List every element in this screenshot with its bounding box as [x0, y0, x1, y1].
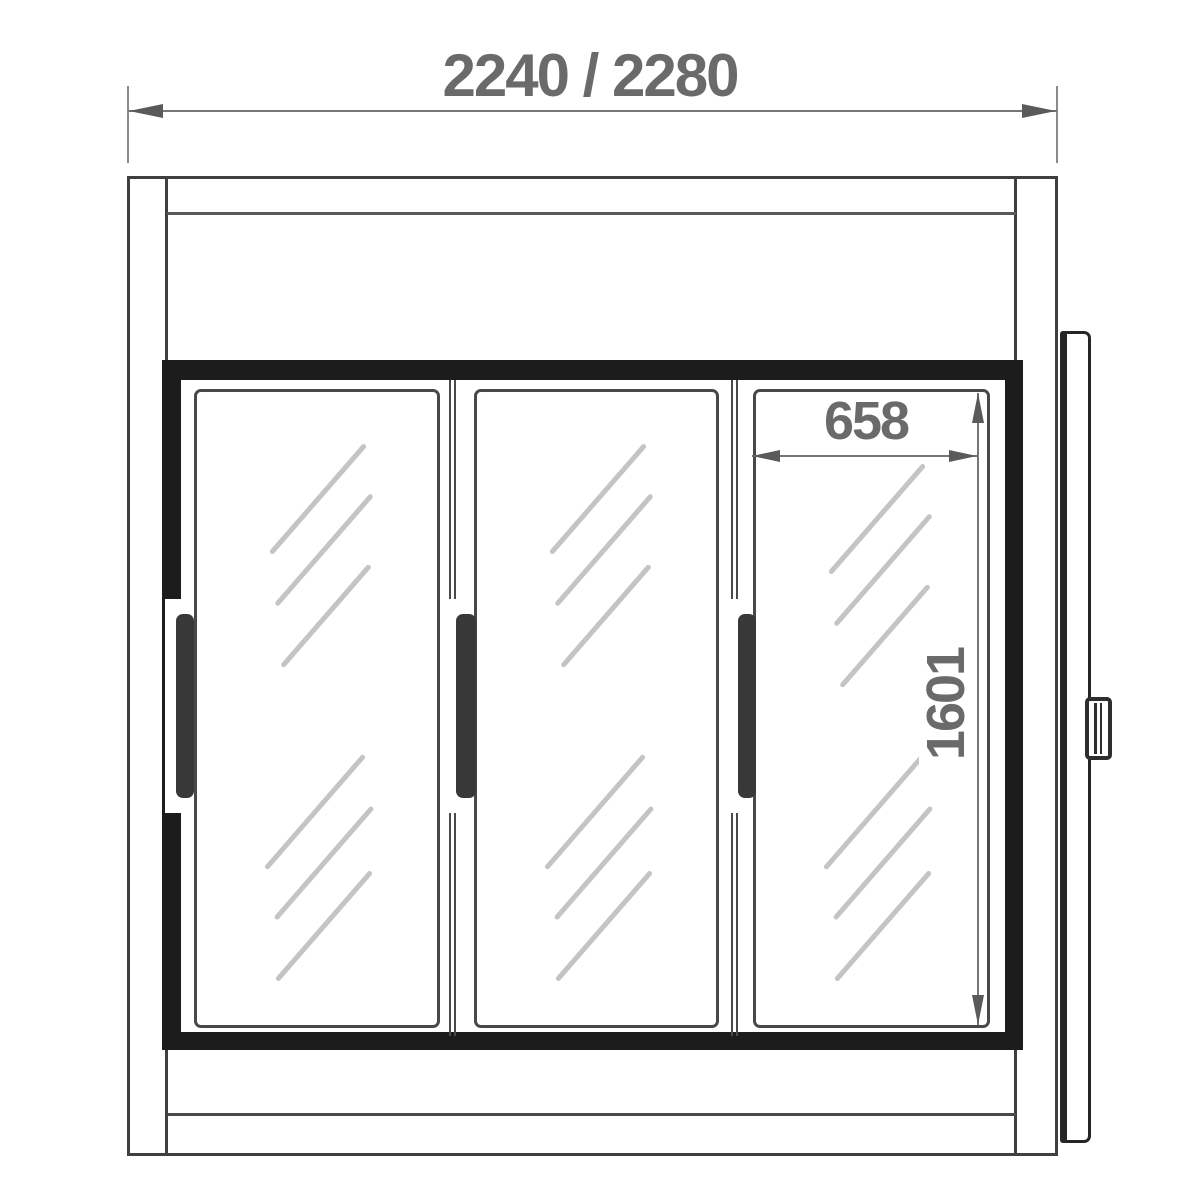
- door-height-dimension-label: 1601: [919, 644, 973, 764]
- side-door-latch: [1085, 697, 1112, 760]
- glass-reflection-line: [833, 513, 933, 626]
- extension-line-left: [127, 86, 129, 163]
- arrowhead-right-icon: [1022, 104, 1056, 118]
- door-handle-middle: [456, 614, 476, 798]
- glass-reflection-line: [823, 754, 925, 870]
- glass-reflection-line: [264, 754, 366, 870]
- glass-reflection-line: [275, 870, 373, 982]
- glass-reflection-line: [833, 806, 934, 921]
- glass-door-middle: [474, 389, 719, 1028]
- door-handle-right: [738, 614, 756, 798]
- arrowhead-left-icon: [752, 450, 780, 462]
- arrowhead-left-icon: [129, 104, 163, 118]
- glass-reflection-line: [269, 443, 367, 555]
- door-width-dimension-label: 658: [796, 394, 936, 448]
- glass-reflection-line: [274, 806, 375, 921]
- glass-door-left: [194, 389, 440, 1028]
- glass-reflection-line: [549, 443, 647, 555]
- door-handle-left: [176, 614, 194, 798]
- arrowhead-down-icon: [972, 995, 984, 1025]
- overall-width-dimension-label: 2240 / 2280: [390, 46, 790, 106]
- cold-room-front-elevation-drawing: 2240 / 2280: [0, 0, 1200, 1200]
- glass-reflection-line: [828, 463, 926, 575]
- glass-reflection-line: [544, 754, 646, 870]
- glass-reflection-line: [554, 806, 655, 921]
- latch-detail-line: [1094, 703, 1097, 754]
- plinth-divider-line: [167, 1113, 1016, 1116]
- extension-line-right: [1056, 86, 1058, 163]
- latch-detail-line: [1100, 703, 1102, 754]
- glass-reflection-line: [274, 493, 374, 606]
- arrowhead-right-icon: [949, 450, 977, 462]
- overall-width-dimension-line: [128, 110, 1057, 112]
- glass-reflection-line: [555, 870, 653, 982]
- canopy-divider-line: [167, 212, 1016, 215]
- door-height-dimension-line: [977, 393, 979, 1025]
- glass-reflection-line: [834, 870, 932, 982]
- arrowhead-up-icon: [972, 393, 984, 423]
- door-width-dimension-line: [752, 455, 977, 457]
- glass-reflection-line: [554, 493, 654, 606]
